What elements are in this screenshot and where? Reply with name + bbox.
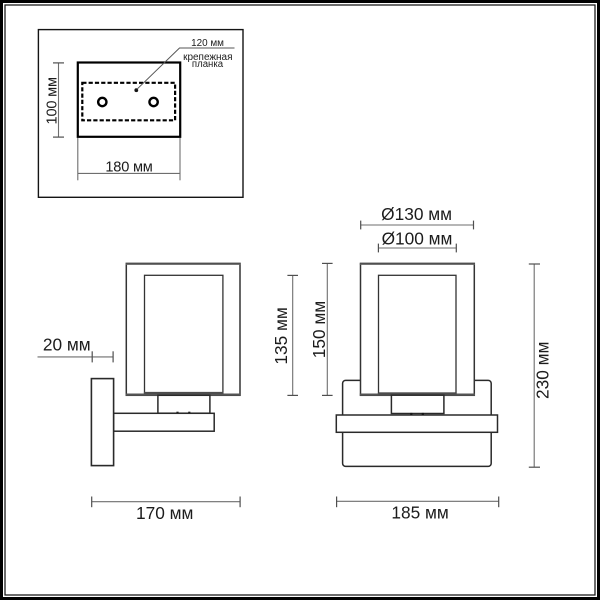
svg-text:100 мм: 100 мм	[45, 77, 61, 124]
svg-text:планка: планка	[192, 59, 224, 70]
svg-text:135 мм: 135 мм	[271, 307, 291, 364]
svg-text:20 мм: 20 мм	[43, 335, 91, 355]
svg-text:Ø130 мм: Ø130 мм	[381, 204, 452, 224]
svg-text:170 мм: 170 мм	[136, 503, 193, 523]
svg-text:185 мм: 185 мм	[391, 503, 448, 523]
svg-text:120 мм: 120 мм	[191, 38, 224, 49]
svg-text:230 мм: 230 мм	[533, 342, 553, 399]
svg-text:180 мм: 180 мм	[105, 160, 152, 176]
svg-text:Ø100 мм: Ø100 мм	[382, 229, 453, 249]
svg-text:150 мм: 150 мм	[309, 301, 329, 358]
